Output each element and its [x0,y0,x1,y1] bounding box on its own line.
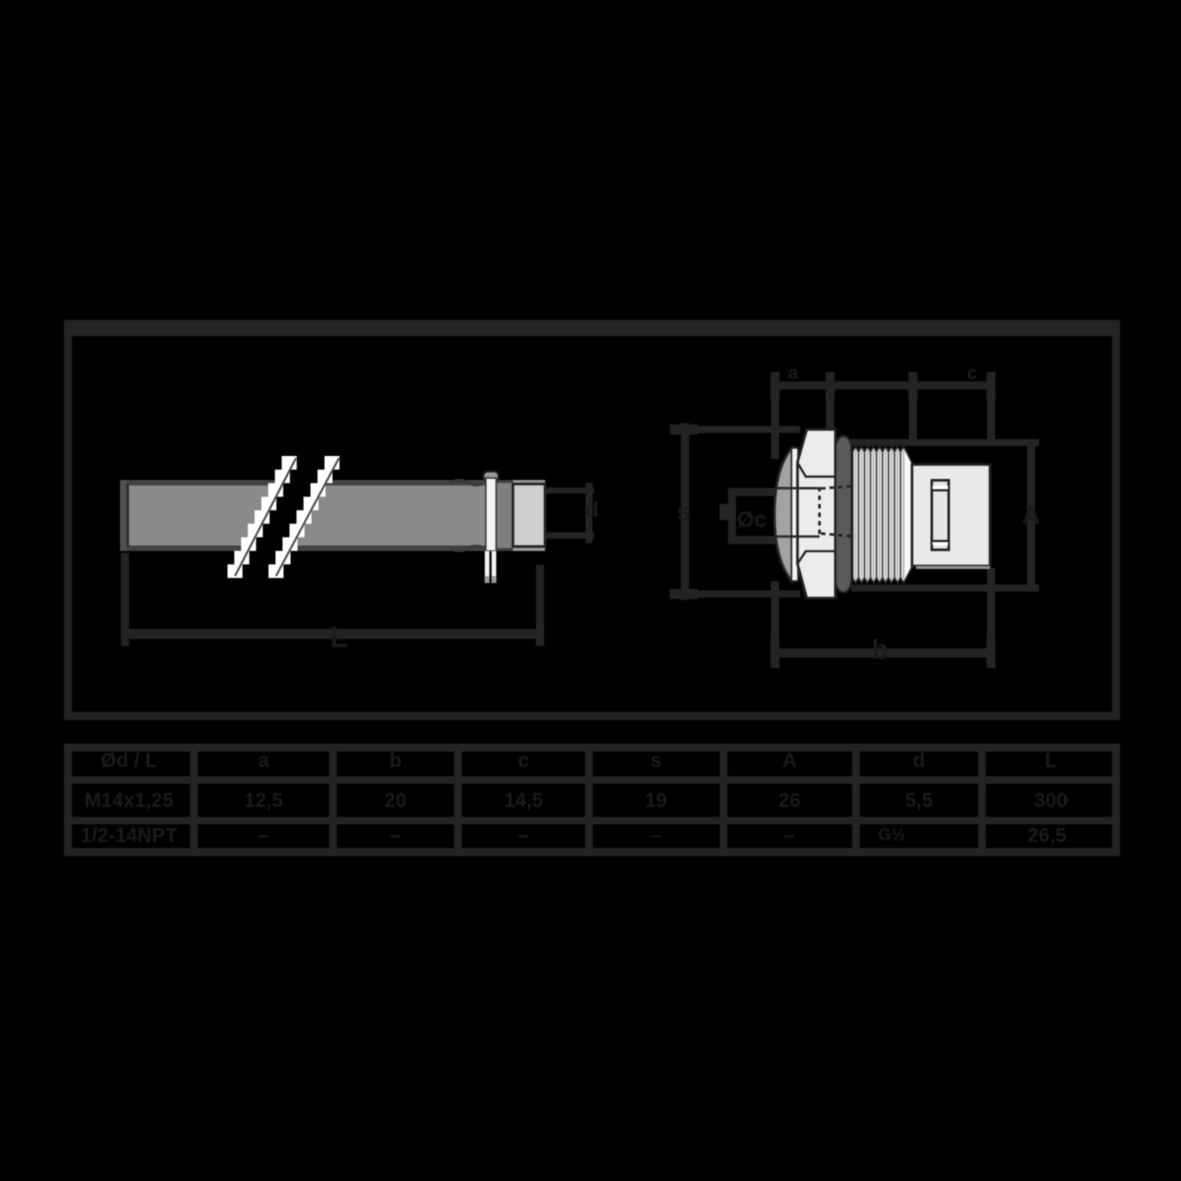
svg-text:14,5: 14,5 [504,790,543,812]
svg-text:d: d [913,750,925,772]
svg-text:–: – [784,825,795,847]
svg-text:26,5: 26,5 [1028,825,1067,847]
svg-text:A: A [1022,500,1041,530]
svg-text:b: b [389,750,401,772]
svg-text:L: L [1045,750,1057,772]
svg-text:A: A [782,750,796,772]
svg-text:20: 20 [384,790,406,812]
svg-text:M14x1,25: M14x1,25 [85,790,174,812]
svg-text:c: c [967,363,977,383]
svg-text:b: b [871,634,888,665]
svg-text:300: 300 [1034,790,1067,812]
svg-text:19: 19 [645,790,667,812]
svg-text:s: s [650,750,661,772]
svg-text:5,5: 5,5 [905,790,933,812]
svg-text:Ød / L: Ød / L [101,750,158,772]
svg-text:s: s [677,496,691,526]
svg-text:G½: G½ [878,825,905,844]
svg-text:–: – [390,825,401,847]
svg-text:Øc: Øc [737,507,766,532]
svg-text:a: a [258,750,270,772]
svg-text:1/2-14NPT: 1/2-14NPT [81,825,178,847]
svg-text:a: a [788,363,799,383]
svg-text:12,5: 12,5 [244,790,283,812]
svg-text:–: – [258,825,269,847]
svg-text:–: – [650,825,661,847]
svg-text:L: L [330,621,348,654]
svg-text:d: d [585,497,598,522]
svg-text:26: 26 [778,790,800,812]
svg-text:c: c [518,750,529,772]
svg-text:–: – [518,825,529,847]
